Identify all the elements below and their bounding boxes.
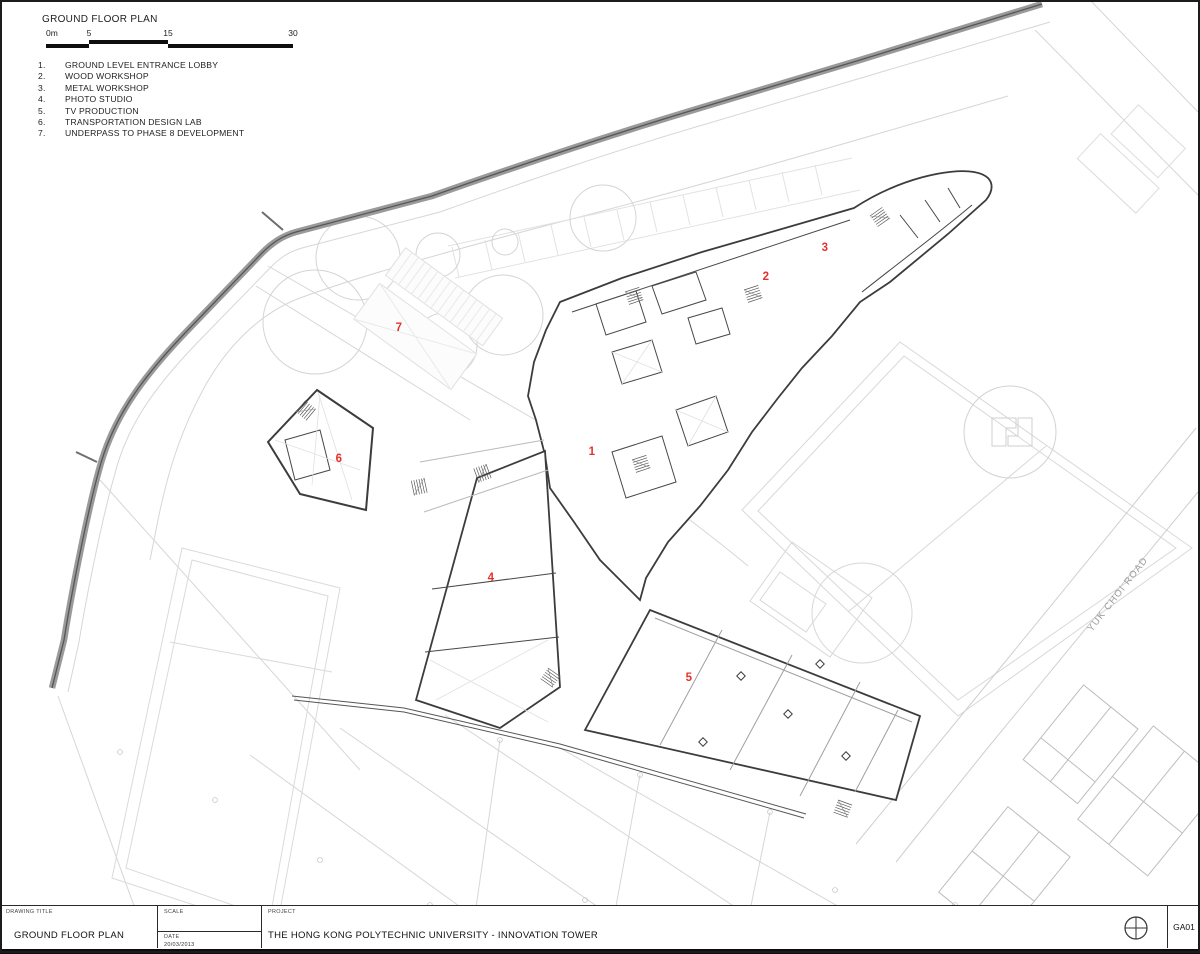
scale-label-30: 30: [288, 28, 297, 38]
project-label: PROJECT: [268, 909, 296, 915]
room-marker-1: 1: [589, 446, 596, 458]
building-transport-lab: [268, 390, 373, 510]
scale-label-15: 15: [163, 28, 172, 38]
building-main-cluster: [528, 171, 992, 600]
crosshair-circle-icon: [1123, 915, 1149, 941]
building-tv-production: [585, 610, 920, 817]
room-marker-5: 5: [686, 672, 693, 684]
room-marker-4: 4: [488, 572, 495, 584]
plan-title: GROUND FLOOR PLAN: [42, 14, 302, 25]
road-name-label: YUK CHOI ROAD: [1085, 555, 1150, 634]
drawing-title-label: DRAWING TITLE: [6, 909, 53, 915]
room-marker-3: 3: [822, 242, 829, 254]
legend-item: 3.METAL WORKSHOP: [38, 83, 244, 94]
title-block-drawing-title-cell: DRAWING TITLE GROUND FLOOR PLAN: [0, 906, 158, 948]
lower-court-field: [112, 548, 340, 932]
cell-divider: [158, 931, 261, 932]
sports-field: [742, 342, 1192, 716]
scale-label-5: 5: [87, 28, 92, 38]
drawing-title-value: GROUND FLOOR PLAN: [14, 930, 124, 941]
building-photo-studio: [416, 451, 560, 728]
title-block: DRAWING TITLE GROUND FLOOR PLAN SCALE DA…: [0, 905, 1200, 954]
legend-item: 1.GROUND LEVEL ENTRANCE LOBBY: [38, 60, 244, 71]
date-label: DATE: [164, 934, 179, 940]
project-name: THE HONG KONG POLYTECHNIC UNIVERSITY - I…: [268, 930, 598, 941]
legend-item: 7.UNDERPASS TO PHASE 8 DEVELOPMENT: [38, 128, 244, 139]
sheet-number: GA01: [1168, 906, 1200, 948]
title-block-sheet-number-cell: GA01: [1168, 906, 1200, 948]
title-block-scale-date-cell: SCALE DATE 20/03/2013: [158, 906, 262, 948]
title-block-bottom-bar: [0, 949, 1200, 954]
legend-item: 4.PHOTO STUDIO: [38, 94, 244, 105]
legend-item: 6.TRANSPORTATION DESIGN LAB: [38, 117, 244, 128]
room-legend: 1.GROUND LEVEL ENTRANCE LOBBY 2.WOOD WOR…: [38, 60, 244, 140]
date-value: 20/03/2013: [164, 942, 195, 948]
scale-bar-segment: [89, 40, 168, 44]
site-plan-drawing: YUK CHOI ROAD: [0, 0, 1200, 953]
neighbor-buildings: [939, 99, 1200, 942]
room-marker-2: 2: [763, 271, 770, 283]
plan-header: GROUND FLOOR PLAN 0m 5 15 30: [42, 14, 302, 54]
room-marker-6: 6: [336, 453, 343, 465]
scale-label-0: 0m: [46, 28, 58, 38]
drawing-sheet: { "sheet": { "plan_title": "GROUND FLOOR…: [0, 0, 1200, 953]
scale-label: SCALE: [164, 909, 184, 915]
room-marker-7: 7: [396, 322, 403, 334]
scale-bar: 0m 5 15 30: [42, 28, 302, 54]
underpass-structure: [354, 248, 503, 390]
scale-bar-segment: [168, 44, 293, 48]
scale-bar-segment: [46, 44, 89, 48]
legend-item: 5.TV PRODUCTION: [38, 106, 244, 117]
title-block-project-cell: PROJECT THE HONG KONG POLYTECHNIC UNIVER…: [262, 906, 1168, 948]
legend-item: 2.WOOD WORKSHOP: [38, 71, 244, 82]
